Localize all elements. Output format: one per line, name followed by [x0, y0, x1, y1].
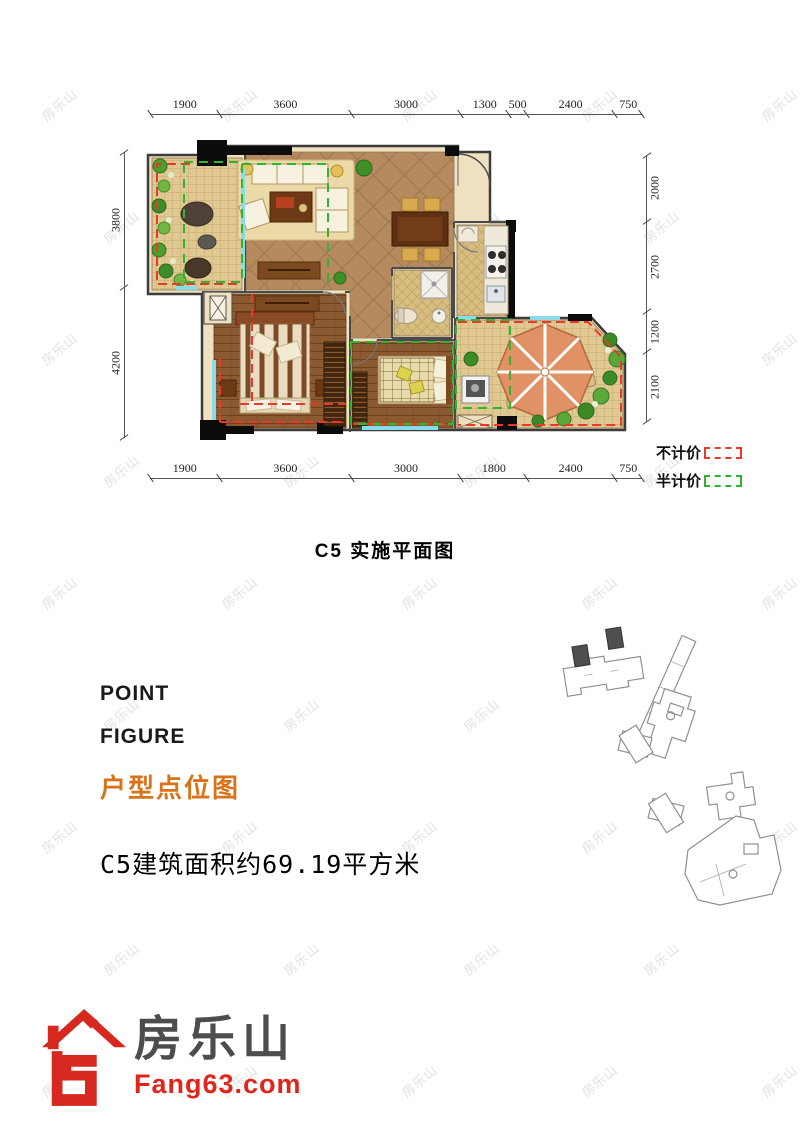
site-building-bottom	[685, 816, 781, 905]
watermark-text: 房乐山	[37, 816, 81, 858]
legend-swatch-half-price	[704, 475, 742, 487]
umbrella	[497, 324, 593, 420]
watermark-text: 房乐山	[397, 572, 441, 614]
info-section: POINT FIGURE 户型点位图	[100, 682, 240, 805]
site-plan	[548, 612, 792, 912]
logo: 房乐山 Fang63.com	[40, 1006, 302, 1108]
floor-plan-drawing	[140, 128, 660, 458]
watermark-text: 房乐山	[37, 572, 81, 614]
logo-texts: 房乐山 Fang63.com	[134, 1006, 302, 1100]
watermark-text: 房乐山	[757, 572, 800, 614]
info-point: POINT	[100, 682, 240, 706]
house-icon	[40, 1006, 128, 1108]
logo-name: 房乐山	[134, 1014, 302, 1067]
watermark-text: 房乐山	[37, 328, 81, 370]
legend-row-no-price: 不计价	[656, 442, 742, 463]
watermark-text: 房乐山	[99, 450, 143, 492]
dimension-top: 19003600300013005002400750	[150, 92, 642, 115]
info-figure: FIGURE	[100, 725, 240, 749]
dimension-left: 38004200	[108, 152, 125, 438]
page: 房乐山房乐山房乐山房乐山房乐山房乐山房乐山房乐山房乐山房乐山房乐山房乐山房乐山房…	[0, 0, 800, 1131]
info-point-figure-cn: 户型点位图	[100, 768, 240, 805]
watermark-text: 房乐山	[217, 572, 261, 614]
plan-legend: 不计价 半计价	[656, 442, 742, 498]
site-building-cluster2	[648, 793, 684, 832]
watermark-text: 房乐山	[279, 938, 323, 980]
watermark-text: 房乐山	[279, 694, 323, 736]
watermark-text: 房乐山	[397, 1060, 441, 1102]
dimension-bottom: 19003600300018002400750	[150, 456, 642, 479]
dimension-right: 2000270012002100	[646, 155, 663, 422]
site-building-chain	[558, 625, 644, 696]
watermark-text: 房乐山	[459, 694, 503, 736]
site-building-right	[705, 771, 757, 821]
watermark-text: 房乐山	[459, 938, 503, 980]
watermark-text: 房乐山	[37, 84, 81, 126]
logo-domain: Fang63.com	[134, 1069, 302, 1100]
watermark-text: 房乐山	[757, 328, 800, 370]
legend-label-half-price: 半计价	[656, 470, 701, 491]
legend-row-half-price: 半计价	[656, 470, 742, 491]
watermark-text: 房乐山	[639, 938, 683, 980]
legend-label-no-price: 不计价	[656, 442, 701, 463]
elevator-shaft	[204, 292, 232, 324]
watermark-text: 房乐山	[99, 938, 143, 980]
watermark-text: 房乐山	[757, 1060, 800, 1102]
watermark-text: 房乐山	[577, 1060, 621, 1102]
watermark-text: 房乐山	[757, 84, 800, 126]
legend-swatch-no-price	[704, 447, 742, 459]
watermark-text: 房乐山	[577, 572, 621, 614]
plan-title: C5 实施平面图	[150, 536, 620, 563]
area-text: C5建筑面积约69.19平方米	[100, 845, 420, 881]
